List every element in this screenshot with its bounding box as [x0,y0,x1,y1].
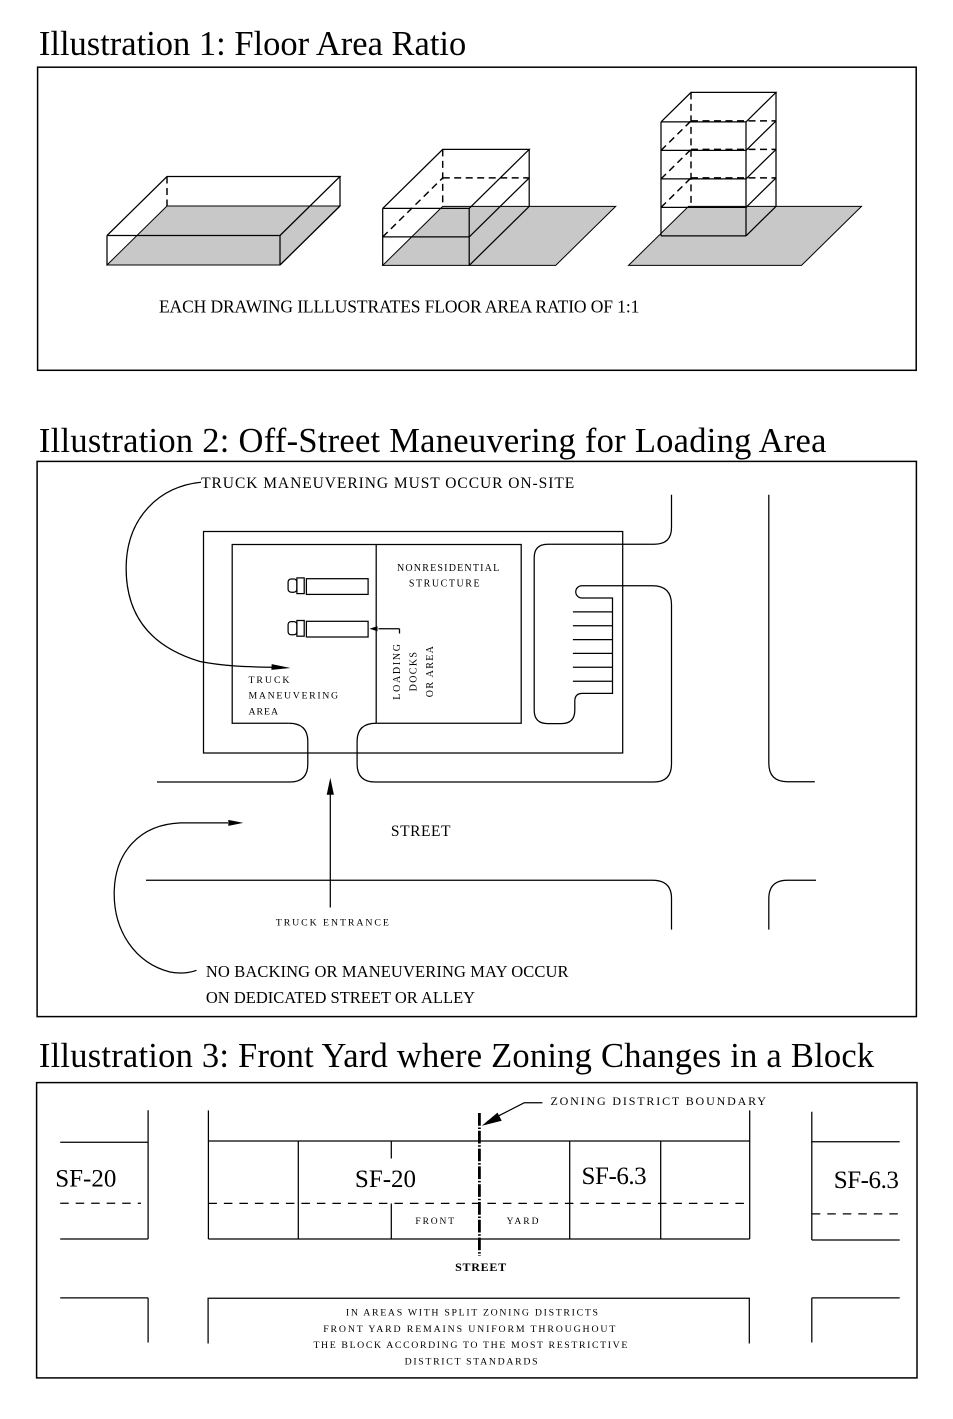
svg-text:SF-6.3: SF-6.3 [582,1163,647,1190]
svg-text:SF-20: SF-20 [355,1166,416,1193]
svg-text:OR AREA: OR AREA [425,645,436,697]
svg-text:NONRESIDENTIAL: NONRESIDENTIAL [397,563,500,574]
svg-text:YARD: YARD [507,1217,541,1227]
svg-text:IN AREAS WITH SPLIT ZONING DIS: IN AREAS WITH SPLIT ZONING DISTRICTS [346,1308,600,1319]
svg-text:MANEUVERING: MANEUVERING [249,691,340,702]
svg-text:FRONT YARD REMAINS UNIFORM THR: FRONT YARD REMAINS UNIFORM THROUGHOUT [323,1324,617,1335]
svg-text:STREET: STREET [455,1260,507,1274]
svg-text:SF-20: SF-20 [55,1165,116,1192]
svg-text:ZONING DISTRICT BOUNDARY: ZONING DISTRICT BOUNDARY [551,1094,768,1108]
svg-text:NO BACKING OR MANEUVERING MAY: NO BACKING OR MANEUVERING MAY OCCUR [206,962,569,981]
svg-text:ON DEDICATED STREET OR ALLEY: ON DEDICATED STREET OR ALLEY [206,988,475,1007]
svg-text:EACH DRAWING ILLLUSTRATES FLOO: EACH DRAWING ILLLUSTRATES FLOOR AREA RAT… [159,297,639,317]
svg-text:DOCKS: DOCKS [409,651,420,692]
svg-text:Illustration 1: Floor Area Rat: Illustration 1: Floor Area Ratio [39,25,466,63]
svg-text:SF-6.3: SF-6.3 [834,1167,899,1194]
svg-text:DISTRICT STANDARDS: DISTRICT STANDARDS [405,1356,540,1367]
svg-text:LOADING: LOADING [392,642,403,699]
svg-text:TRUCK: TRUCK [249,675,292,686]
svg-text:TRUCK MANEUVERING MUST OCCUR O: TRUCK MANEUVERING MUST OCCUR ON-SITE [201,475,575,492]
svg-text:Illustration 2: Off-Street Man: Illustration 2: Off-Street Maneuvering f… [39,422,827,460]
svg-text:STRUCTURE: STRUCTURE [409,578,481,589]
svg-text:FRONT: FRONT [415,1217,456,1227]
svg-text:STREET: STREET [391,823,451,840]
svg-text:Illustration 3: Front Yard whe: Illustration 3: Front Yard where Zoning … [39,1037,875,1075]
svg-text:THE BLOCK ACCORDING TO THE MOS: THE BLOCK ACCORDING TO THE MOST RESTRICT… [313,1340,629,1351]
svg-text:TRUCK ENTRANCE: TRUCK ENTRANCE [276,918,391,929]
svg-text:AREA: AREA [249,706,279,717]
